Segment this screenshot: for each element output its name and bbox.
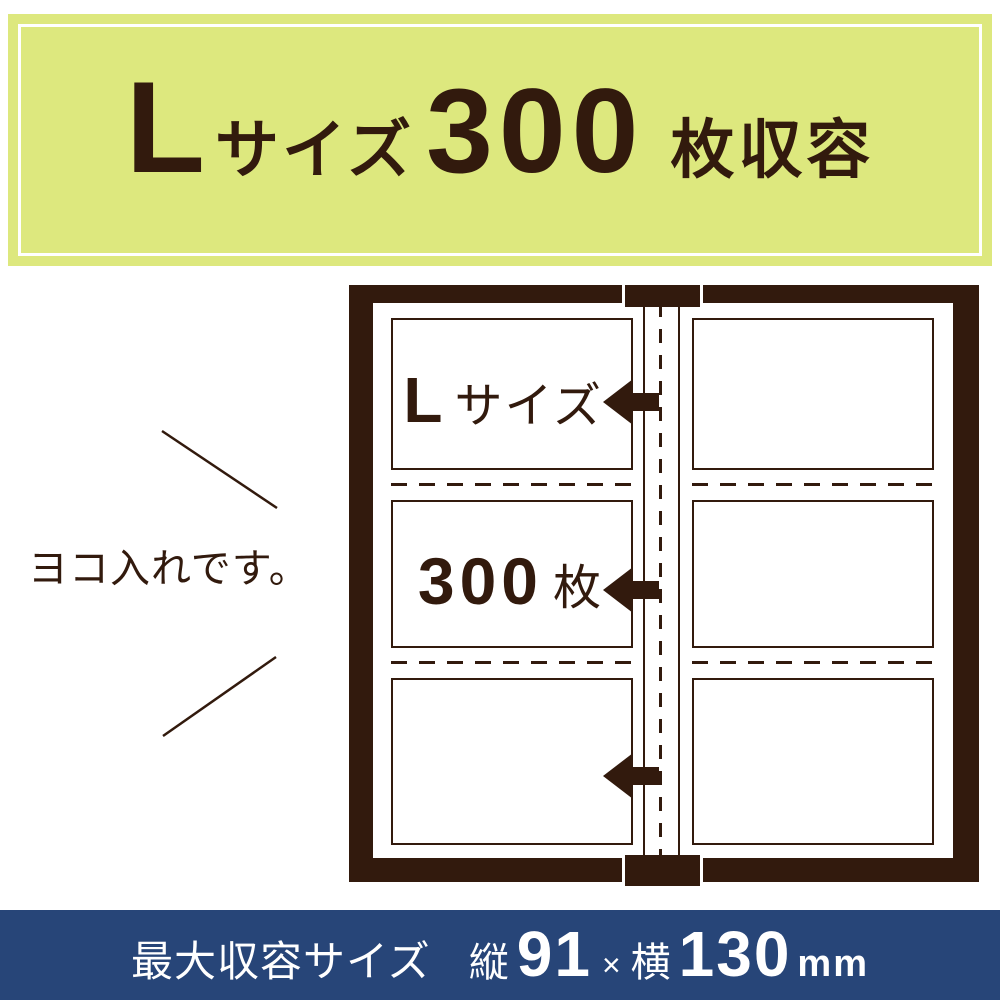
banner-count-suffix: 枚収容 [670,118,874,182]
slot1-label: L サイズ [393,320,631,468]
album-frame-top-right [703,285,979,303]
insert-arrow-icon [603,379,659,425]
slot-divider-dashed [391,483,633,486]
album-frame-bottom-right [703,858,979,882]
footer-height-prefix: 縦 [469,943,509,983]
product-infographic: L サイズ 300 枚収容 ヨコ入れです。 [0,0,1000,1000]
album-frame-left [349,285,373,882]
slot-divider-dashed [391,661,633,664]
slot2-label: 300 枚 [393,502,631,646]
binding-spine-dashed [659,303,662,858]
footer-unit: mm [797,945,869,983]
slot1-size-suffix: サイズ [454,383,603,431]
banner: L サイズ 300 枚収容 [8,14,992,266]
slot1-size-letter: L [403,368,442,432]
photo-slot-right-2 [692,500,934,648]
emphasis-line-upper [162,431,277,508]
album-frame-bottom-left [349,858,622,882]
insert-arrow-icon [603,753,659,799]
banner-count: 300 [426,71,644,191]
photo-slot-right-3 [692,678,934,845]
album-frame-right [953,285,979,882]
album-diagram: L サイズ 300 枚 [349,285,979,886]
footer-bar: 最大収容サイズ 縦 91 × 横 130 mm [0,910,1000,1000]
slot2-count: 300 [418,548,543,614]
binding-line-right [678,303,680,858]
album-spine-tab-top [625,285,700,307]
banner-title: L サイズ 300 枚収容 [8,14,992,266]
emphasis-lines [150,420,290,750]
album-frame-top-left [349,285,622,303]
photo-slot-left-3 [391,678,633,845]
slot-divider-dashed [692,661,934,664]
footer-height-value: 91 [517,922,592,986]
emphasis-line-lower [163,657,276,736]
slot-divider-dashed [692,483,934,486]
footer-multiply-sign: × [602,949,621,981]
insert-arrow-icon [603,567,659,613]
footer-width-prefix: 横 [631,943,671,983]
banner-size-letter: L [126,62,205,192]
photo-slot-right-1 [692,318,934,470]
footer-width-value: 130 [679,922,792,986]
footer-label: 最大収容サイズ [131,941,431,983]
slot2-unit: 枚 [553,565,601,613]
banner-size-suffix: サイズ [215,118,414,182]
album-spine-tab-bottom [625,855,700,886]
